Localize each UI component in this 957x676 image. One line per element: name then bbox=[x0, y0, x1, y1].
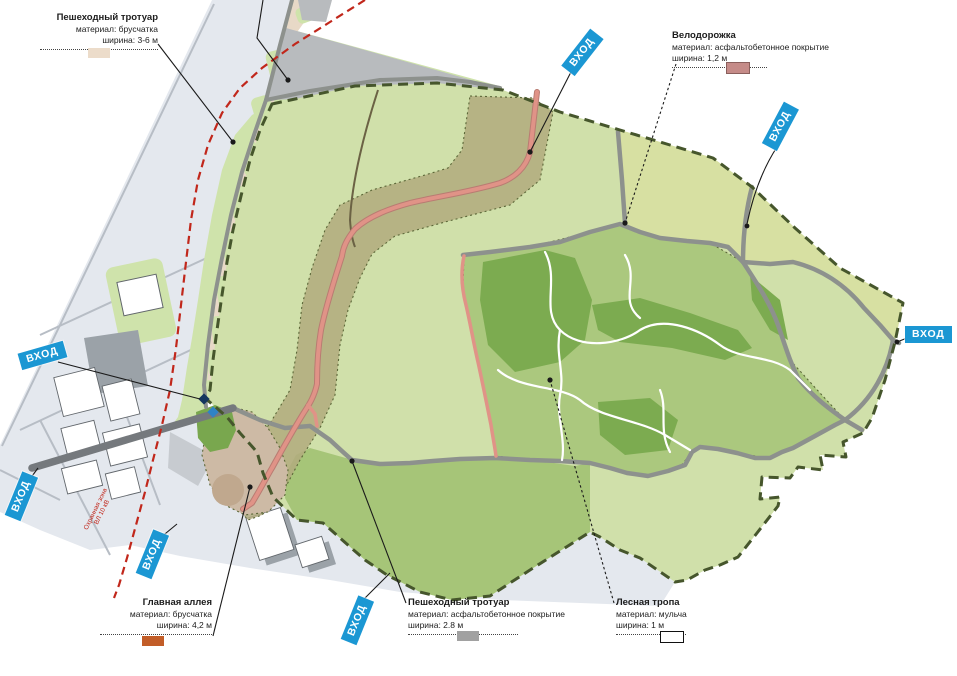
legend-width: ширина: 2.8 м bbox=[408, 620, 588, 631]
legend-title: Пешеходный тротуар bbox=[40, 12, 158, 24]
legend-title: Велодорожка bbox=[672, 30, 902, 42]
dotted-rule bbox=[672, 65, 767, 68]
dotted-rule bbox=[100, 632, 212, 635]
legend-forest-trail: Лесная тропа материал: мульча ширина: 1 … bbox=[616, 597, 726, 635]
legend-bike-path: Велодорожка материал: асфальтобетонное п… bbox=[672, 30, 902, 68]
park-masterplan: Пешеходный тротуар материал: брусчатка ш… bbox=[0, 0, 957, 676]
legend-material: материал: брусчатка bbox=[40, 24, 158, 35]
legend-width: ширина: 4,2 м bbox=[100, 620, 212, 631]
legend-material: материал: асфальтобетонное покрытие bbox=[672, 42, 902, 53]
entrance-badge-east: ВХОД bbox=[905, 326, 952, 343]
legend-material: материал: брусчатка bbox=[100, 609, 212, 620]
legend-width: ширина: 1,2 м bbox=[672, 53, 902, 64]
legend-material: материал: мульча bbox=[616, 609, 726, 620]
legend-main-alley: Главная аллея материал: брусчатка ширина… bbox=[100, 597, 212, 635]
legend-swatch-pedestrian-asphalt bbox=[457, 631, 479, 641]
legend-swatch-main-alley bbox=[142, 636, 164, 646]
legend-title: Главная аллея bbox=[100, 597, 212, 609]
legend-pedestrian-asphalt: Пешеходный тротуар материал: асфальтобет… bbox=[408, 597, 588, 635]
legend-pedestrian-pavers: Пешеходный тротуар материал: брусчатка ш… bbox=[40, 12, 158, 50]
legend-material: материал: асфальтобетонное покрытие bbox=[408, 609, 588, 620]
legend-title: Лесная тропа bbox=[616, 597, 726, 609]
legend-swatch-forest-trail bbox=[660, 631, 684, 643]
legend-width: ширина: 1 м bbox=[616, 620, 726, 631]
legend-title: Пешеходный тротуар bbox=[408, 597, 588, 609]
legend-swatch-bike-path bbox=[726, 62, 750, 74]
legend-width: ширина: 3-6 м bbox=[40, 35, 158, 46]
legend-swatch-pedestrian-pavers bbox=[88, 48, 110, 58]
